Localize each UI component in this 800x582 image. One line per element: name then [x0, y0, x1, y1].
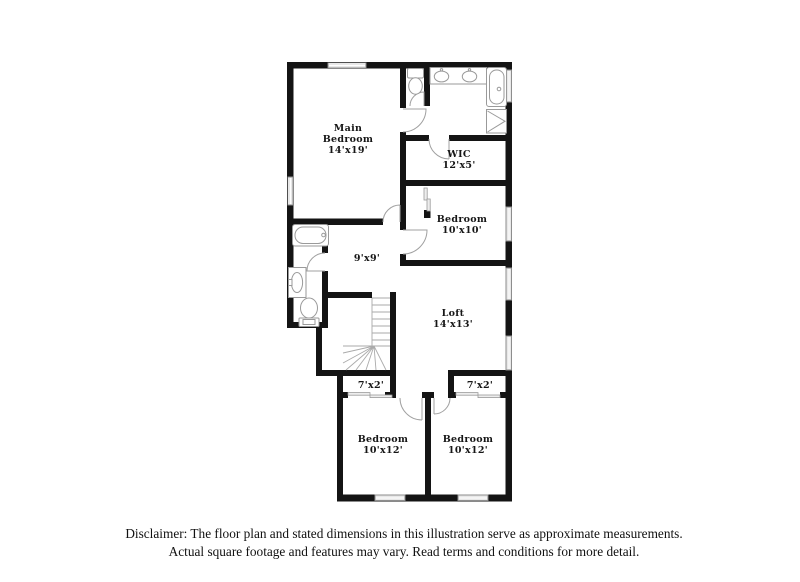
door-bedroom-left [400, 398, 422, 420]
room-dims: 7'x2' [358, 380, 384, 391]
room-label-hall: 9'x9' [354, 253, 380, 264]
room-label-main-bedroom: Main Bedroom 14'x19' [323, 123, 374, 156]
wall-segment [449, 135, 507, 141]
window [506, 336, 512, 370]
fixtures-layer [289, 68, 507, 327]
wall-segment [400, 132, 406, 230]
sink-icon [289, 268, 307, 298]
room-name: WIC [446, 149, 471, 160]
wall-segment [316, 322, 322, 376]
room-label-closet-left: 7'x2' [358, 380, 384, 391]
door-hall-bathroom [307, 253, 325, 271]
disclaimer-line-1: Disclaimer: The floor plan and stated di… [125, 526, 682, 541]
bypass-door [427, 199, 430, 211]
double-sink-vanity-icon [430, 68, 487, 85]
room-labels: Main Bedroom 14'x19' WIC 12'x5' Bedroom … [323, 123, 494, 456]
bypass-door [456, 393, 478, 396]
room-name: Loft [442, 308, 465, 319]
room-label-bedroom-10x10: Bedroom 10'x10' [437, 214, 488, 236]
room-dims: 10'x10' [442, 225, 482, 236]
staircase [343, 298, 390, 370]
wall-segment [337, 370, 343, 502]
wall-segment [448, 392, 456, 398]
wall-segment [500, 392, 512, 398]
shower-icon [487, 110, 507, 134]
floor-plan-svg: Main Bedroom 14'x19' WIC 12'x5' Bedroom … [0, 0, 800, 582]
wall-segment [422, 392, 434, 398]
bypass-door [424, 188, 427, 200]
door-bedroom-right [434, 398, 450, 414]
window [506, 207, 512, 241]
disclaimer: Disclaimer: The floor plan and stated di… [125, 526, 682, 559]
wall-segment [390, 292, 396, 398]
room-dims: 14'x19' [328, 145, 368, 156]
disclaimer-line-2: Actual square footage and features may v… [169, 544, 640, 559]
bypass-door [370, 395, 392, 398]
door-bath-entry [403, 109, 426, 132]
room-label-bedroom-left: Bedroom 10'x12' [358, 434, 409, 456]
room-dims: 14'x13' [433, 319, 473, 330]
wall-segment [400, 260, 507, 266]
room-label-closet-right: 7'x2' [467, 380, 493, 391]
door-main-bedroom [383, 205, 400, 222]
door-bedroom-10x10 [403, 230, 427, 254]
toilet-icon [299, 298, 319, 327]
bypass-door [478, 395, 500, 398]
wall-segment [322, 292, 372, 298]
room-label-bedroom-right: Bedroom 10'x12' [443, 434, 494, 456]
bypass-door [348, 393, 370, 396]
toilet-icon [408, 69, 424, 95]
wall-segment [337, 392, 348, 398]
bathtub-icon [293, 225, 329, 247]
room-label-loft: Loft 14'x13' [433, 308, 473, 330]
room-name: Bedroom [358, 434, 409, 445]
wall-segment [337, 370, 396, 376]
wall-segment [425, 398, 431, 495]
room-dims: 12'x5' [442, 160, 475, 171]
door-wic [429, 139, 449, 159]
bathtub-icon [487, 68, 507, 107]
wall-segment [448, 370, 512, 376]
wall-segment [322, 271, 328, 328]
window [375, 495, 405, 501]
room-dims: 7'x2' [467, 380, 493, 391]
room-dims: 10'x12' [448, 445, 488, 456]
room-label-wic: WIC 12'x5' [442, 149, 475, 171]
floor-plan-page: Main Bedroom 14'x19' WIC 12'x5' Bedroom … [0, 0, 800, 582]
room-dims: 10'x12' [363, 445, 403, 456]
room-name: Bedroom [443, 434, 494, 445]
window [458, 495, 488, 501]
window [506, 268, 512, 300]
wall-segment [424, 62, 430, 106]
room-name: Main [334, 123, 362, 134]
wall-segment [400, 62, 406, 108]
window [288, 177, 293, 205]
room-dims: 9'x9' [354, 253, 380, 264]
wall-segment [400, 180, 507, 186]
window [328, 63, 366, 68]
room-name: Bedroom [437, 214, 488, 225]
room-name: Bedroom [323, 134, 374, 145]
